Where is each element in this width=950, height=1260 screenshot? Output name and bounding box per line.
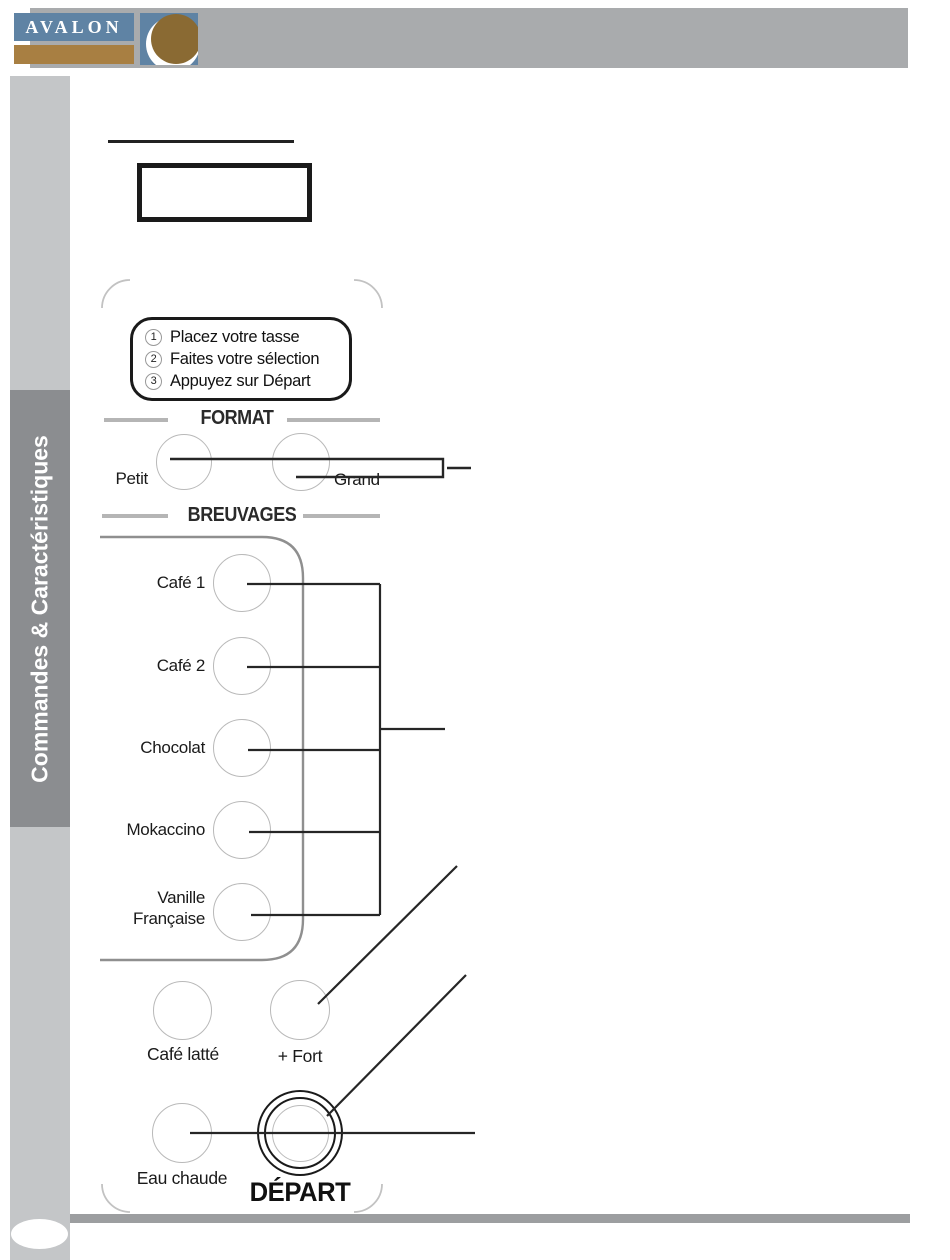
chocolat-button[interactable]	[213, 719, 271, 777]
format-divider-left	[104, 418, 168, 422]
cafe-latte-label: Café latté	[133, 1044, 233, 1065]
plus-fort-label: + Fort	[260, 1046, 340, 1067]
brand-name: AVALON	[25, 17, 122, 38]
format-divider-right	[287, 418, 380, 422]
plus-fort-button[interactable]	[270, 980, 330, 1040]
cafe-2-button[interactable]	[213, 637, 271, 695]
depart-button-middle-ring	[264, 1097, 336, 1169]
grand-label: Grand	[334, 470, 380, 490]
vanille-label-line2: Française	[90, 908, 205, 929]
eau-chaude-button[interactable]	[152, 1103, 212, 1163]
petit-button[interactable]	[156, 434, 212, 490]
instruction-bubble: 1 Placez votre tasse 2 Faites votre séle…	[130, 317, 352, 401]
cafe-latte-button[interactable]	[153, 981, 212, 1040]
instruction-step-2: 2 Faites votre sélection	[145, 350, 349, 369]
breuvages-divider-left	[102, 514, 168, 518]
breuvages-divider-right	[303, 514, 380, 518]
section-title-underline	[108, 140, 294, 143]
mokaccino-label: Mokaccino	[90, 820, 205, 840]
sidebar-section-tab: Commandes & Caractéristiques	[10, 390, 70, 827]
sidebar-section-label: Commandes & Caractéristiques	[27, 435, 54, 783]
step-3-number-icon: 3	[145, 373, 162, 390]
page-number-oval	[11, 1219, 68, 1249]
vanille-francaise-button[interactable]	[213, 883, 271, 941]
logo-emblem	[140, 13, 198, 65]
logo-sphere-icon	[151, 14, 198, 64]
beverage-callout-lines	[247, 584, 445, 915]
format-heading: FORMAT	[186, 407, 289, 430]
avalon-logo: AVALON	[14, 13, 134, 64]
chocolat-label: Chocolat	[90, 738, 205, 758]
petit-label: Petit	[106, 469, 148, 489]
step-1-number-icon: 1	[145, 329, 162, 346]
depart-button-inner-ring	[272, 1105, 329, 1162]
display-window	[137, 163, 312, 222]
instruction-step-3: 3 Appuyez sur Départ	[145, 372, 349, 391]
step-2-text: Faites votre sélection	[170, 350, 319, 369]
mokaccino-button[interactable]	[213, 801, 271, 859]
step-2-number-icon: 2	[145, 351, 162, 368]
grand-button[interactable]	[272, 433, 330, 491]
step-1-text: Placez votre tasse	[170, 328, 299, 347]
eau-chaude-label: Eau chaude	[128, 1168, 236, 1189]
breuvages-heading: BREUVAGES	[184, 504, 301, 527]
step-3-text: Appuyez sur Départ	[170, 372, 310, 391]
vanille-label-line1: Vanille	[90, 887, 205, 908]
cafe-1-label: Café 1	[90, 573, 205, 593]
cafe-1-button[interactable]	[213, 554, 271, 612]
footer-bar	[70, 1214, 910, 1223]
vanille-francaise-label: Vanille Française	[90, 887, 205, 929]
instruction-step-1: 1 Placez votre tasse	[145, 328, 349, 347]
logo-wordmark-box: AVALON	[14, 13, 134, 41]
logo-brown-bar	[14, 45, 134, 64]
manual-page: AVALON Commandes & Caractéristiques 1 Pl…	[0, 0, 950, 1260]
depart-label: DÉPART	[234, 1177, 367, 1208]
depart-button[interactable]	[257, 1090, 343, 1176]
cafe-2-label: Café 2	[90, 656, 205, 676]
